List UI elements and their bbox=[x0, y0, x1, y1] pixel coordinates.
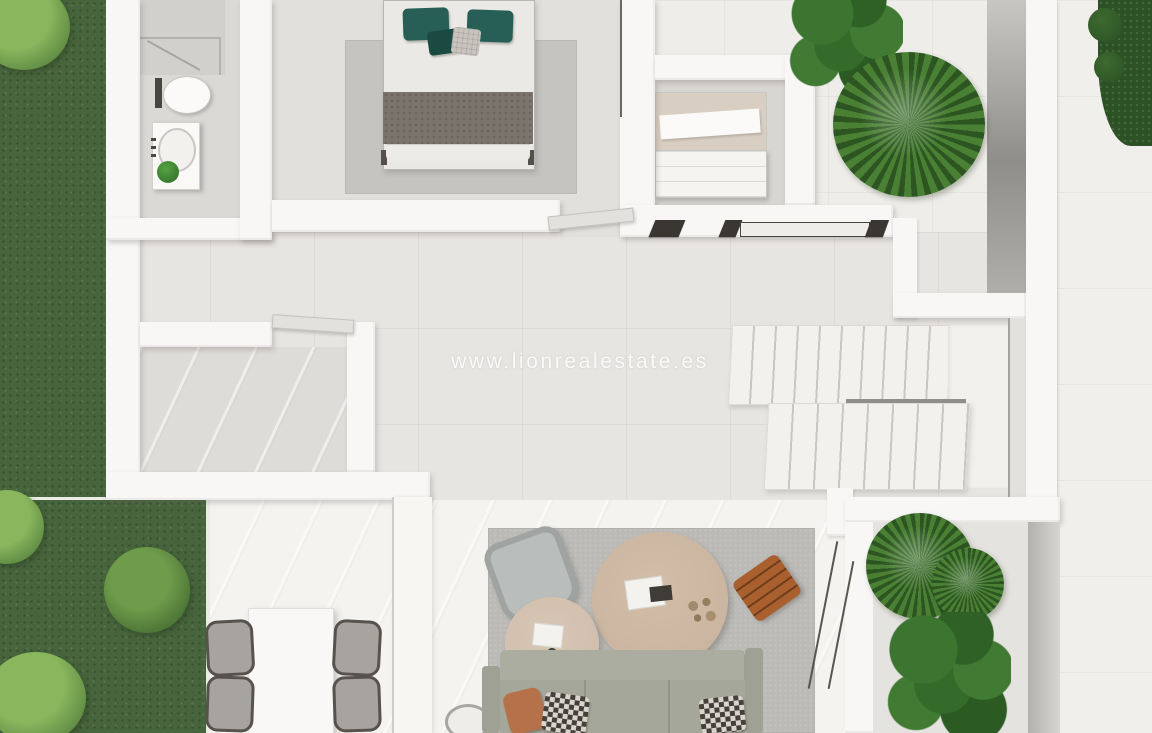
wall-storeroom-east bbox=[347, 322, 375, 472]
wall-storeroom-south bbox=[106, 472, 430, 500]
wall-storeroom-north bbox=[140, 322, 272, 347]
card-small-table bbox=[532, 622, 564, 648]
toilet-cistern bbox=[155, 78, 162, 108]
roundleaf-plant-planter bbox=[886, 612, 1011, 733]
dining-table bbox=[248, 608, 334, 733]
hedge-bump-1 bbox=[1088, 8, 1122, 42]
dining-chair-3 bbox=[332, 619, 383, 677]
stairs-upper-flight bbox=[728, 325, 952, 405]
storeroom-floor bbox=[140, 347, 347, 472]
sofa-armrest-left bbox=[482, 666, 500, 733]
wall-tall-gray bbox=[987, 0, 1026, 293]
sofa-pillow-checker-left bbox=[541, 691, 591, 733]
sliding-door-panel bbox=[740, 222, 870, 237]
wall-terrace-divider bbox=[392, 497, 432, 733]
dining-chair-1 bbox=[205, 619, 256, 677]
wall-planter-east-gray bbox=[1028, 522, 1060, 733]
dried-flowers bbox=[680, 590, 724, 630]
wall-bedroom-south bbox=[272, 200, 560, 232]
shower-glass-line-v bbox=[219, 37, 221, 75]
wall-stair-east bbox=[1008, 318, 1028, 498]
toilet-bowl bbox=[163, 76, 211, 114]
sofa-back bbox=[500, 650, 745, 680]
wall-closet-west-shadow-line bbox=[620, 0, 622, 117]
wall-white-band-east bbox=[1026, 0, 1057, 522]
dining-chair-4 bbox=[332, 675, 382, 733]
bed-sheet-fold bbox=[386, 144, 530, 161]
towel-rail-marks bbox=[151, 138, 156, 141]
wall-closet-north bbox=[655, 55, 790, 80]
wall-outer-left bbox=[106, 0, 140, 497]
shower-glass-line-h bbox=[140, 37, 220, 39]
bush-mid-round bbox=[104, 547, 190, 633]
wall-closet-west bbox=[620, 0, 655, 232]
wall-bathroom-bedroom bbox=[240, 0, 272, 240]
palm-plant-top bbox=[833, 52, 985, 197]
floor-plan-render: www.lionrealestate.es bbox=[0, 0, 1152, 733]
watermark-text: www.lionrealestate.es bbox=[425, 350, 735, 374]
palm-plant-planter-small bbox=[932, 548, 1004, 620]
dresser-drawers bbox=[655, 150, 767, 198]
hedge-bump-2 bbox=[1094, 52, 1124, 82]
dining-chair-2 bbox=[205, 675, 255, 733]
book-dark bbox=[649, 585, 672, 602]
stairs-lower-flight bbox=[764, 403, 971, 490]
garden-grass-strip bbox=[0, 0, 110, 500]
bed-pillow-knit bbox=[450, 26, 481, 56]
wall-stair-north bbox=[893, 293, 1026, 318]
wall-planter-north bbox=[845, 497, 1060, 522]
sofa-pillow-checker-right bbox=[698, 695, 747, 733]
sofa-armrest-right bbox=[745, 648, 763, 733]
bed-blanket bbox=[383, 92, 533, 144]
vanity-plant bbox=[157, 161, 179, 183]
